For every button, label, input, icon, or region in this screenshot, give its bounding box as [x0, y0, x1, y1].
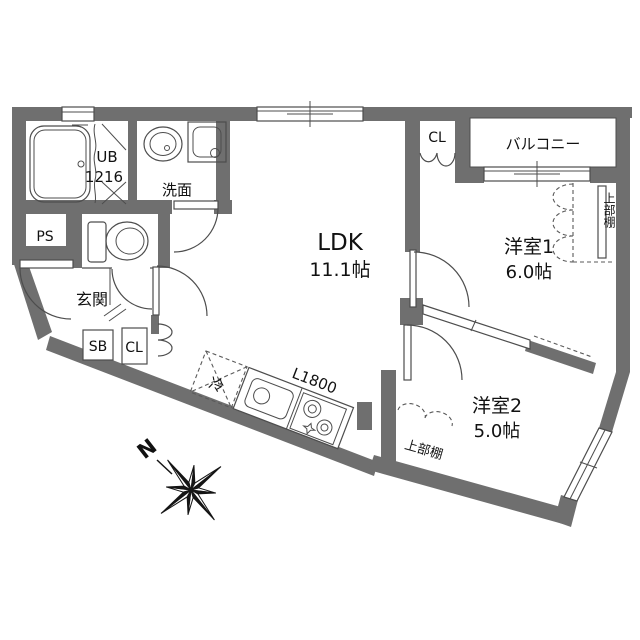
wall-right-bedroom2-upper [599, 372, 630, 432]
wall-left [12, 107, 26, 265]
room-label-bedroom1: 洋室1 [504, 236, 554, 258]
wall-entrance-ldk-stub [151, 315, 159, 334]
wall-toilet-east [158, 214, 170, 268]
bathtub [30, 126, 90, 202]
entrance-door-leaf [20, 260, 73, 268]
wall-balcony-sill-right [590, 167, 618, 183]
room-label-balcony: バルコニー [506, 135, 581, 153]
bedroom1-door-leaf [410, 250, 416, 307]
wall-washroom-east [216, 121, 230, 214]
bath-door-diagonal [102, 124, 126, 150]
toilet-tank [88, 222, 106, 262]
bedroom1-closet-fold-doors [553, 184, 573, 262]
wall-ldk-bedroom2 [381, 370, 396, 465]
washroom-door-leaf [174, 201, 218, 209]
closet-ldk-fold-doors [420, 153, 455, 166]
bedroom2-door-arc [407, 325, 462, 380]
bathtub-drain [78, 161, 84, 167]
wall-ps-south [24, 246, 66, 260]
room-label-ldk: LDK [317, 230, 364, 256]
bath-window [62, 107, 94, 121]
label-shoe-box: SB [89, 339, 108, 355]
compass-north-label: N [133, 434, 162, 464]
floor-plan-drawing: 冷 L1800 N LDK 11.1帖 洋室1 6.0帖 洋室2 5.0帖 バル… [0, 0, 640, 640]
label-upper-shelf-bedroom2: 上部棚 [403, 438, 445, 463]
room-size-bedroom1: 6.0帖 [506, 262, 553, 283]
washroom-door-arc [174, 208, 218, 252]
room-size-bedroom2: 5.0帖 [474, 421, 521, 442]
wall-kitchen-stub [357, 402, 372, 430]
label-closet-ldk: CL [428, 130, 446, 146]
label-upper-shelf-bedroom1: 上部棚 [602, 192, 616, 229]
wall-right-bedroom1 [616, 167, 630, 372]
bedroom1-2-sliding-door [423, 305, 530, 349]
wall-ldk-bedroom1 [405, 121, 420, 252]
washbasin-inner [150, 133, 176, 156]
room-label-bedroom2: 洋室2 [472, 395, 522, 417]
wall-bath-washroom-divider [128, 121, 137, 205]
refrigerator-label: 冷 [206, 374, 226, 396]
compass: N [133, 434, 245, 543]
toilet-bowl-inner [116, 228, 144, 254]
toilet-door-arc [112, 269, 152, 309]
room-label-entrance: 玄関 [76, 290, 108, 309]
hall-door-arc [157, 266, 207, 316]
wall-balcony-sill-left [455, 167, 484, 183]
wall-entrance-diagonal [12, 258, 52, 340]
hall-door-leaf [153, 267, 159, 315]
toilet-bowl [106, 222, 148, 260]
label-closet-entrance: CL [125, 340, 143, 356]
bedroom2-closet-fold-doors [398, 404, 452, 426]
room-label-unit-bath: UB [96, 148, 117, 166]
wall-balcony-top [470, 107, 632, 118]
closet-entrance-fold-doors [158, 324, 172, 356]
floor-plan-page: 冷 L1800 N LDK 11.1帖 洋室1 6.0帖 洋室2 5.0帖 バル… [0, 0, 640, 640]
label-pipe-space: PS [36, 229, 53, 245]
room-size-ldk: 11.1帖 [309, 259, 370, 281]
room-size-unit-bath: 1216 [85, 168, 123, 186]
washbasin-drain [165, 146, 170, 151]
room-label-washroom: 洗面 [162, 181, 192, 199]
bedroom2-door-leaf [404, 325, 411, 380]
wall-bottom-bedroom2 [369, 455, 568, 524]
